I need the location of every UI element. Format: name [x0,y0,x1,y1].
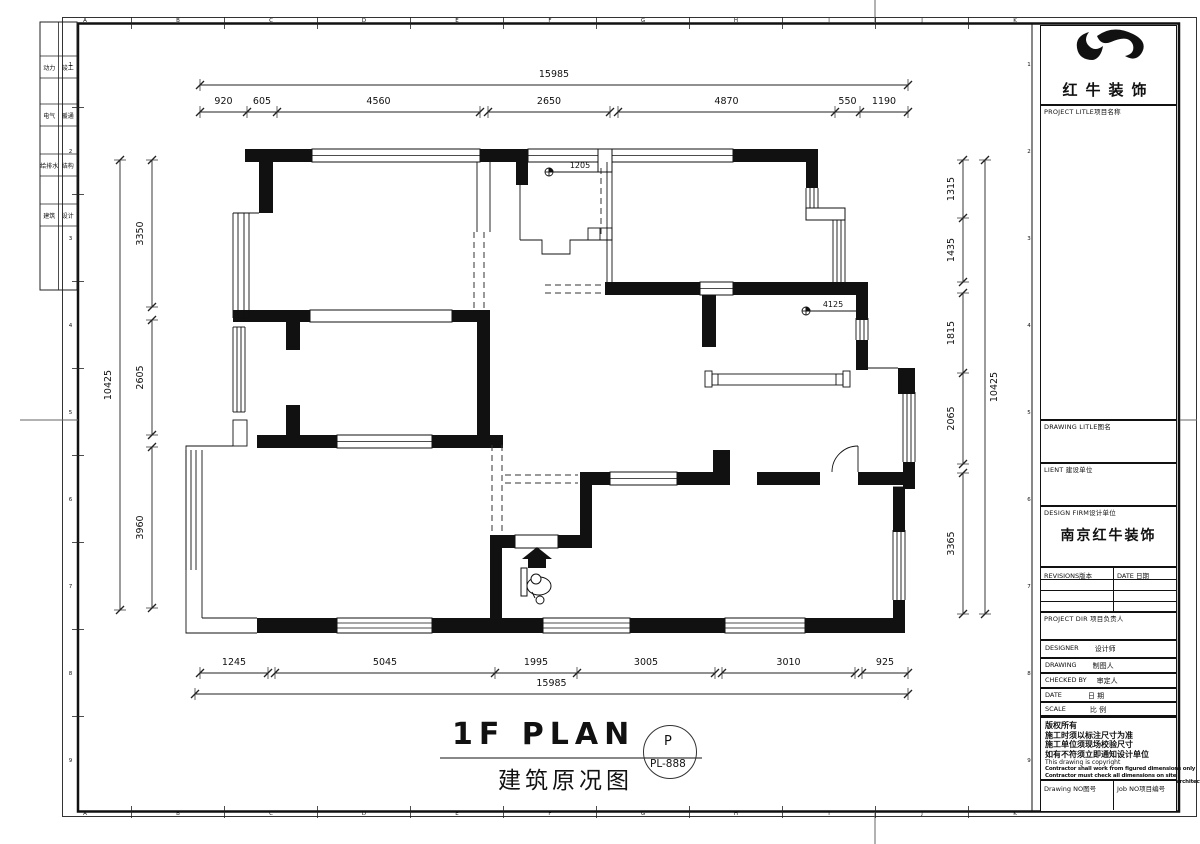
grid-number: 9 [1027,758,1031,764]
project-title-box: PROJECT LITLE项目名称 [1040,105,1177,420]
sheet-inner-border [78,24,1179,812]
dim-label: 15985 [536,678,566,689]
dim-label: 1315 [946,177,957,201]
dim-label: 1995 [524,657,548,668]
grid-letter: G [641,811,645,817]
grid-number: 3 [1027,236,1031,242]
date-label-cn: 日 期 [1088,691,1104,701]
drawing-title-label: DRAWING LITLE图名 [1041,421,1176,431]
grid-letter: E [455,811,459,817]
copyright-line: 版权所有 [1045,721,1176,731]
copyright-line: 如有不符须立即通知设计单位 [1045,750,1176,760]
company-name: 红牛装饰 [1041,79,1176,100]
dim-label: 4870 [714,96,738,107]
entry-arrow-icon [522,547,552,568]
grid-letter: E [455,18,459,24]
project-dir-box: PROJECT DIR 项目负责人 [1040,612,1177,640]
drawing-title-sub: 建筑原况图 [498,761,633,795]
dim-label: 1245 [222,657,246,668]
signoff-label: 竣工 [62,64,74,72]
grid-number: 3 [69,236,73,242]
grid-number: 4 [69,323,73,329]
grid-number: 6 [69,497,73,503]
drawing-title-box: DRAWING LITLE图名 [1040,420,1177,463]
rednow-logo-icon [1041,26,1176,82]
grid-letter: J [920,811,923,817]
dim-label: 2065 [946,406,957,430]
grid-letter: A [83,18,87,24]
windows [310,149,845,633]
dim-label: 3350 [135,221,146,245]
drawing-label-cn: 制图人 [1093,661,1114,671]
dim-label: 4560 [366,96,390,107]
grid-number: 6 [1027,497,1031,503]
dim-label: 3365 [946,531,957,555]
grid-number: 9 [69,758,73,764]
grid-letter: C [269,811,273,817]
window-midlines [312,156,805,629]
signoff-label: 暖通 [62,112,74,120]
date-label: DATE [1045,691,1062,701]
dim-label: 10425 [989,372,1000,402]
revision-row [1041,580,1176,591]
grid-number: 1 [1027,62,1031,68]
dim-label: 1435 [946,238,957,262]
grid-letter: H [734,18,738,24]
signoff-label: 电气 [43,112,55,120]
drawing-title: 1F PLAN 建筑原况图 P PL-888 [440,712,720,802]
drawing-no-label: Drawing NO图号 [1041,781,1114,810]
signoff-label: 结构 [62,162,74,170]
design-firm-box: DESIGN FIRM设计单位 南京红牛装饰 [1040,506,1177,567]
dim-label: 3005 [634,657,658,668]
drawing-no-box: Drawing NO图号 Job NO项目编号 [1040,780,1177,812]
dim-label: 1815 [946,321,957,345]
sheet-outer-border [63,18,1197,817]
grid-letter: J [920,18,923,24]
grid-number: 7 [1027,584,1031,590]
job-no-label: Job NO项目编号 [1114,781,1165,810]
dim-label: 5045 [373,657,397,668]
grid-number: 8 [69,671,73,677]
dim-label: 3010 [776,657,800,668]
grid-letter: B [176,811,180,817]
grid-letter: B [176,18,180,24]
logo-box: 红牛装饰 [1040,25,1177,105]
copyright-line: 施工单位须现场校验尺寸 [1045,740,1176,750]
designer-box: DESIGNER设计师 [1040,640,1177,658]
grid-letter: D [362,811,366,817]
design-firm-value: 南京红牛装饰 [1041,525,1176,545]
dim-label: 1190 [872,96,896,107]
checked-by-label: CHECKED BY [1045,676,1087,686]
design-firm-label: DESIGN FIRM设计单位 [1041,507,1176,517]
dim-label: 15985 [539,69,569,80]
grid-number: 2 [1027,149,1031,155]
drawing-box: DRAWING制图人 [1040,658,1177,673]
grid-number: 5 [69,410,73,416]
grid-letter: K [1013,811,1017,817]
scale-label: SCALE [1045,705,1066,715]
badge-letter: P [664,734,672,749]
person-figure-icon [521,568,551,604]
project-title-label: PROJECT LITLE项目名称 [1041,106,1176,116]
grid-letter: A [83,811,87,817]
walls [233,149,915,633]
dim-label: 925 [876,657,894,668]
grid-letter: H [734,811,738,817]
client-label: LIENT 建设单位 [1041,464,1176,474]
grid-letter: G [641,18,645,24]
grid-letter: F [548,18,551,24]
drawing-label: DRAWING [1045,661,1077,671]
grid-letter: C [269,18,273,24]
revisions-date-label: DATE 日期 [1114,568,1149,579]
revisions-table: REVISIONS版本 DATE 日期 [1040,567,1177,612]
designer-label-cn: 设计师 [1095,644,1116,654]
revisions-label: REVISIONS版本 [1041,568,1114,579]
drawing-title-main: 1F PLAN [452,717,635,752]
badge-number: PL-888 [650,758,686,770]
copyright-box: 版权所有 施工时须以标注尺寸为准 施工单位须现场校验尺寸 如有不符须立即通知设计… [1040,716,1177,780]
grid-letter: F [548,811,551,817]
checked-by-box: CHECKED BY审定人 [1040,673,1177,688]
datum-label-1205: 1205 [570,161,590,170]
dim-label: 2605 [135,365,146,389]
dim-label: 605 [253,96,271,107]
signoff-label: 建筑 [43,212,55,220]
copyright-line: 施工时须以标注尺寸为准 [1045,731,1176,741]
date-box: DATE日 期 [1040,688,1177,702]
project-dir-label: PROJECT DIR 项目负责人 [1041,613,1176,623]
dim-label: 3960 [135,515,146,539]
datum-label-4125: 4125 [823,300,843,309]
grid-number: 4 [1027,323,1031,329]
dim-label: 10425 [103,370,114,400]
signoff-label: 动力 [43,64,55,72]
grid-number: 5 [1027,410,1031,416]
scale-box: SCALE比 例 [1040,702,1177,716]
signoff-label: 设计 [62,212,74,220]
scale-label-cn: 比 例 [1090,705,1106,715]
dim-label: 920 [214,96,232,107]
dim-label: 2650 [537,96,561,107]
copyright-line: Contractor shall work from figured dimen… [1045,766,1176,773]
revision-row [1041,591,1176,602]
signoff-label: 给排水 [40,162,58,170]
designer-label: DESIGNER [1045,644,1079,654]
grid-number: 8 [1027,671,1031,677]
dim-label: 550 [838,96,856,107]
client-box: LIENT 建设单位 [1040,463,1177,506]
grid-letter: K [1013,18,1017,24]
copyright-line: This drawing is copyright [1045,759,1176,766]
checked-by-label-cn: 审定人 [1097,676,1118,686]
grid-letter: D [362,18,366,24]
grid-number: 7 [69,584,73,590]
